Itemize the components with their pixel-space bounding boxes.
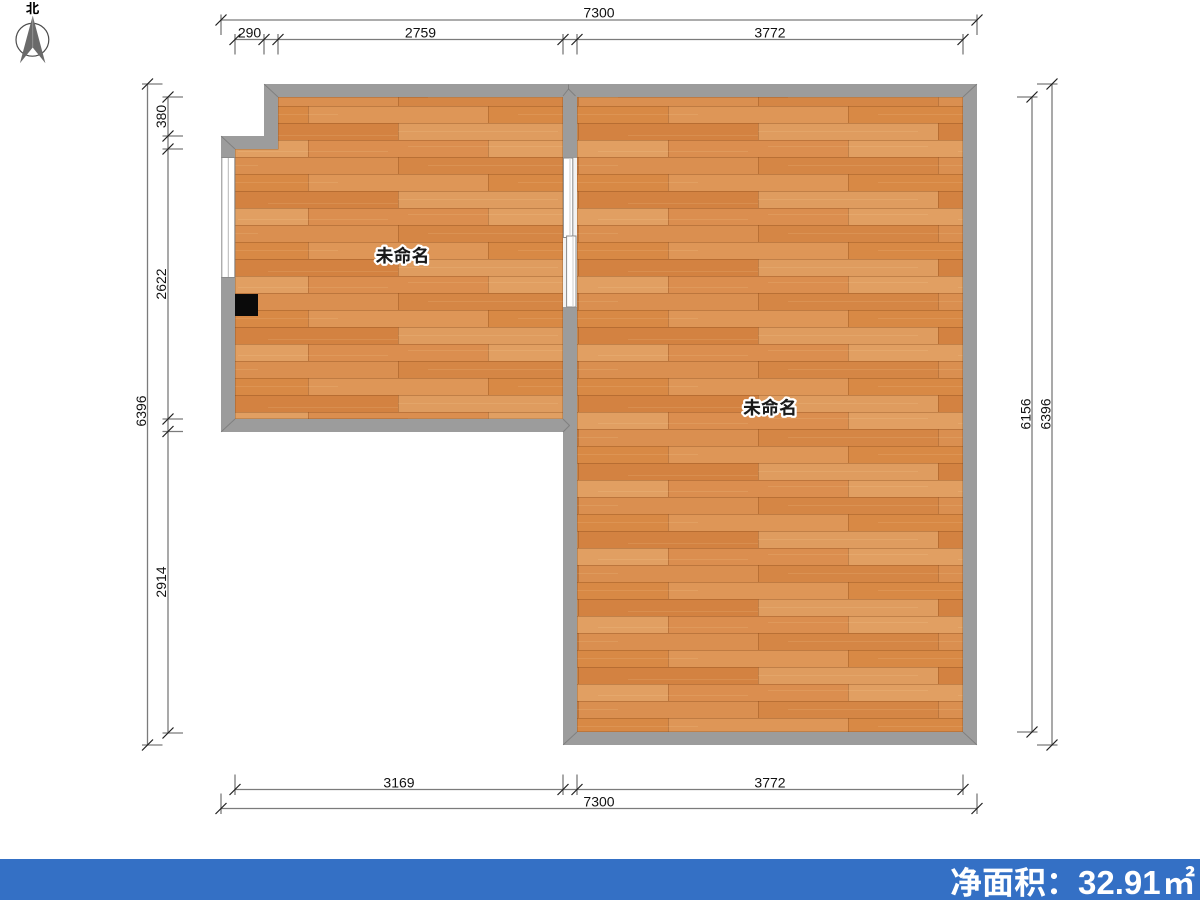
svg-text:3772: 3772 [754,25,785,41]
svg-text:2622: 2622 [153,268,169,299]
svg-text:32.91: 32.91 [1078,864,1161,900]
svg-text:290: 290 [238,25,262,41]
svg-text:2759: 2759 [405,25,436,41]
svg-text:6396: 6396 [133,395,149,426]
svg-text:6156: 6156 [1018,398,1034,429]
svg-text:380: 380 [153,105,169,129]
svg-text:7300: 7300 [583,5,614,21]
svg-text:2914: 2914 [153,566,169,597]
svg-text:7300: 7300 [583,794,614,810]
svg-text:3772: 3772 [754,775,785,791]
svg-text:6396: 6396 [1038,398,1054,429]
svg-text:3169: 3169 [383,775,414,791]
